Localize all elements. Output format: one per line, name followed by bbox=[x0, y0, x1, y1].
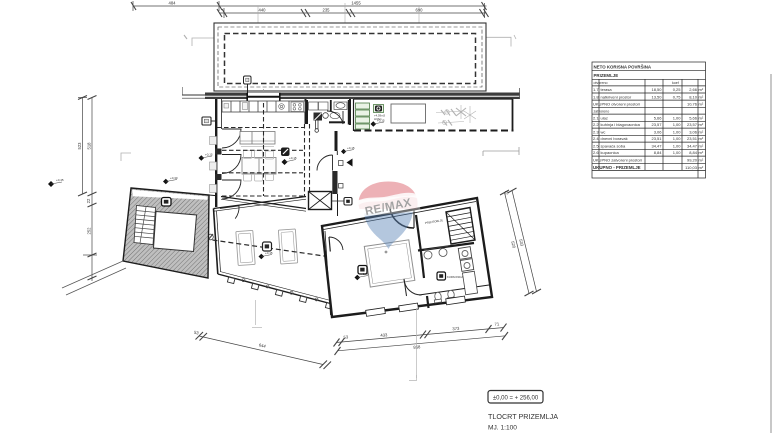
svg-text:otvoreno: otvoreno bbox=[594, 81, 608, 85]
svg-text:m²: m² bbox=[699, 94, 704, 99]
svg-text:110,03: 110,03 bbox=[685, 165, 698, 170]
svg-text:1.8: 1.8 bbox=[593, 94, 599, 99]
svg-text:23,57: 23,57 bbox=[651, 122, 662, 127]
svg-text:±0,00 = + 256,00: ±0,00 = + 256,00 bbox=[493, 396, 539, 402]
svg-text:2.1: 2.1 bbox=[593, 115, 599, 120]
svg-text:13,50: 13,50 bbox=[651, 94, 662, 99]
svg-text:KUPAONICA: KUPAONICA bbox=[447, 275, 463, 279]
svg-text:+0,15: +0,15 bbox=[265, 251, 273, 255]
svg-text:m²: m² bbox=[699, 150, 704, 155]
svg-text:koef: koef bbox=[672, 81, 679, 85]
svg-text:8,10: 8,10 bbox=[689, 94, 698, 99]
svg-text:m²: m² bbox=[699, 143, 704, 148]
svg-text:10,76: 10,76 bbox=[687, 101, 698, 106]
svg-text:kuhinja i blagovaonica: kuhinja i blagovaonica bbox=[601, 122, 641, 127]
svg-text:+0,45: +0,45 bbox=[56, 178, 64, 182]
svg-text:1,00: 1,00 bbox=[673, 122, 682, 127]
svg-text:1.7: 1.7 bbox=[593, 87, 599, 92]
svg-text:23,57: 23,57 bbox=[687, 122, 698, 127]
svg-text:UKUPNO otvoreni prostori: UKUPNO otvoreni prostori bbox=[593, 101, 640, 106]
svg-text:+0,30: +0,30 bbox=[170, 176, 178, 180]
svg-text:m²: m² bbox=[699, 87, 704, 92]
svg-text:3,06: 3,06 bbox=[654, 129, 663, 134]
svg-text:34,47: 34,47 bbox=[687, 143, 698, 148]
svg-text:m²: m² bbox=[699, 101, 704, 106]
svg-text:34,47: 34,47 bbox=[651, 143, 662, 148]
svg-text:m²: m² bbox=[699, 136, 704, 141]
svg-text:440: 440 bbox=[259, 8, 267, 13]
svg-text:NETO KORISNA POVRŠINA: NETO KORISNA POVRŠINA bbox=[594, 65, 652, 70]
svg-text:1,00: 1,00 bbox=[673, 143, 682, 148]
svg-text:natkriveni prostor: natkriveni prostor bbox=[601, 94, 632, 99]
svg-text:+0,15: +0,15 bbox=[205, 153, 213, 157]
svg-text:433: 433 bbox=[380, 332, 388, 338]
svg-text:252: 252 bbox=[87, 227, 92, 235]
svg-text:8,84: 8,84 bbox=[689, 150, 698, 155]
svg-text:2.2: 2.2 bbox=[593, 122, 599, 127]
svg-text:+0,16: +0,16 bbox=[361, 272, 369, 276]
svg-text:+0,15: +0,15 bbox=[347, 146, 355, 150]
svg-text:690: 690 bbox=[416, 8, 424, 13]
svg-text:2.4: 2.4 bbox=[593, 136, 599, 141]
svg-text:2,66: 2,66 bbox=[689, 87, 698, 92]
svg-text:ulaz: ulaz bbox=[601, 115, 608, 120]
svg-text:0,25: 0,25 bbox=[673, 87, 682, 92]
svg-text:523: 523 bbox=[77, 142, 82, 150]
svg-text:m²: m² bbox=[699, 165, 704, 170]
svg-text:18,50: 18,50 bbox=[651, 87, 662, 92]
svg-text:23,51: 23,51 bbox=[687, 136, 698, 141]
svg-text:518: 518 bbox=[87, 142, 92, 150]
svg-text:373: 373 bbox=[452, 326, 460, 332]
svg-text:23,51: 23,51 bbox=[651, 136, 662, 141]
svg-text:wc: wc bbox=[601, 129, 606, 134]
svg-text:2.3: 2.3 bbox=[593, 129, 599, 134]
svg-text:2.5: 2.5 bbox=[593, 143, 599, 148]
svg-text:UKUPNO - PRIZEMLJE: UKUPNO - PRIZEMLJE bbox=[593, 165, 641, 170]
svg-text:1,00: 1,00 bbox=[673, 115, 682, 120]
svg-text:8,84: 8,84 bbox=[654, 150, 663, 155]
svg-text:1455: 1455 bbox=[351, 1, 361, 6]
svg-text:m²: m² bbox=[699, 122, 704, 127]
svg-text:MJ. 1:100: MJ. 1:100 bbox=[488, 425, 517, 432]
svg-text:22: 22 bbox=[86, 198, 91, 203]
svg-text:+0,15: +0,15 bbox=[289, 156, 297, 160]
svg-text:3,06: 3,06 bbox=[689, 129, 698, 134]
svg-text:m²: m² bbox=[699, 129, 704, 134]
svg-text:TLOCRT PRIZEMLJA: TLOCRT PRIZEMLJA bbox=[488, 412, 558, 421]
svg-text:PRIZEMLJE: PRIZEMLJE bbox=[594, 73, 619, 78]
svg-text:zatvoreno: zatvoreno bbox=[594, 109, 610, 113]
svg-text:m²: m² bbox=[699, 115, 704, 120]
svg-text:spavaća soba: spavaća soba bbox=[601, 143, 626, 148]
svg-text:5,66: 5,66 bbox=[689, 115, 698, 120]
svg-text:terasa: terasa bbox=[601, 87, 613, 92]
svg-text:99,20: 99,20 bbox=[687, 157, 698, 162]
svg-text:UKUPNO zatvoreni prostori: UKUPNO zatvoreni prostori bbox=[593, 157, 642, 162]
svg-text:2.6: 2.6 bbox=[593, 150, 599, 155]
svg-text:1,00: 1,00 bbox=[673, 150, 682, 155]
svg-text:1,00: 1,00 bbox=[673, 129, 682, 134]
svg-text:484: 484 bbox=[169, 1, 177, 6]
svg-text:dnevni boravak: dnevni boravak bbox=[601, 136, 628, 141]
svg-text:858: 858 bbox=[413, 344, 421, 350]
svg-text:m²: m² bbox=[699, 157, 704, 162]
svg-text:0,75: 0,75 bbox=[673, 94, 682, 99]
svg-text:+0,15: +0,15 bbox=[377, 119, 385, 123]
svg-text:5,66: 5,66 bbox=[654, 115, 663, 120]
svg-text:235: 235 bbox=[323, 8, 331, 13]
svg-text:kupaonica: kupaonica bbox=[601, 150, 620, 155]
svg-text:1,00: 1,00 bbox=[673, 136, 682, 141]
